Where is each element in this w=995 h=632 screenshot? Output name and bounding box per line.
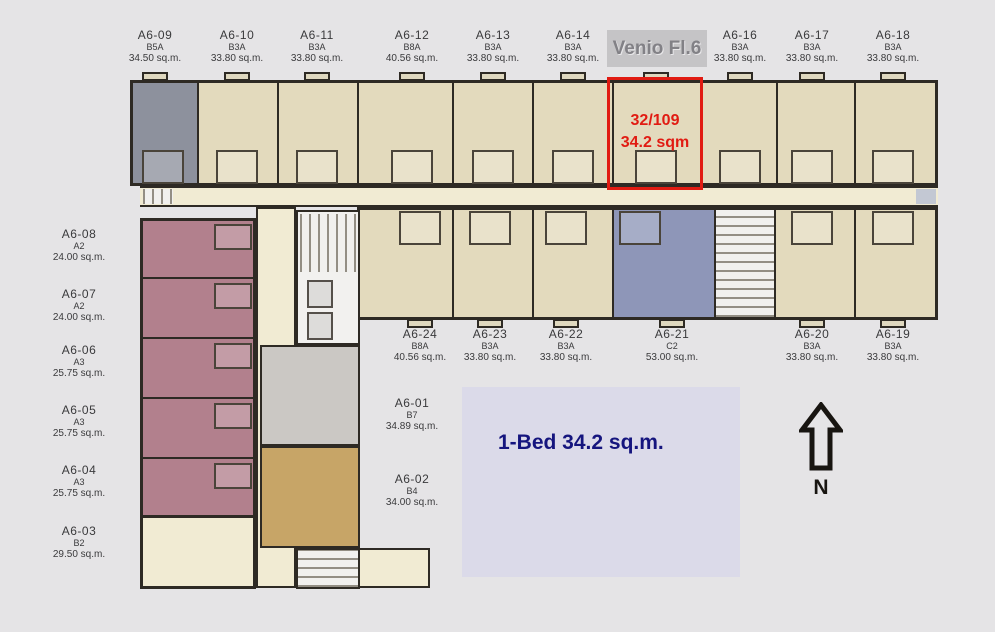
bathroom-area: [872, 211, 914, 245]
unit-id: A6-08: [34, 227, 124, 241]
unit-area: 33.80 sq.m.: [851, 352, 935, 364]
unit-type: A2: [34, 301, 124, 312]
unit-id: A6-03: [34, 524, 124, 538]
bathroom-area: [216, 150, 258, 184]
unit-type: C2: [630, 341, 714, 352]
selected-unit-highlight[interactable]: 32/109 34.2 sqm: [607, 77, 703, 190]
wall: [357, 80, 359, 186]
bathroom-area: [214, 224, 252, 250]
unit-type: A3: [34, 477, 124, 488]
unit-id: A6-11: [275, 28, 359, 42]
wall: [774, 207, 776, 320]
wall: [854, 80, 856, 186]
corridor-east-end: [916, 189, 936, 204]
unit-label-a6-12: A6-12 B8A 40.56 sq.m.: [370, 28, 454, 65]
unit-label-a6-07: A6-07 A2 24.00 sq.m.: [34, 287, 124, 324]
unit-id: A6-14: [531, 28, 615, 42]
balcony-tab: [224, 72, 250, 81]
bathroom-area: [142, 150, 184, 184]
unit-id: A6-21: [630, 327, 714, 341]
unit-id: A6-06: [34, 343, 124, 357]
wall: [776, 80, 778, 186]
bathroom-area: [619, 211, 661, 245]
corridor-south-stub: [358, 548, 430, 588]
unit-label-a6-05: A6-05 A3 25.75 sq.m.: [34, 403, 124, 440]
elevator-shaft: [307, 280, 333, 308]
unit-area: 33.80 sq.m.: [770, 352, 854, 364]
unit-label-a6-23: A6-23 B3A 33.80 sq.m.: [448, 327, 532, 364]
unit-type: B5A: [113, 42, 197, 53]
bathroom-area: [872, 150, 914, 184]
unit-type: B8A: [370, 42, 454, 53]
unit-id: A6-02: [367, 472, 457, 486]
unit-area: 25.75 sq.m.: [34, 428, 124, 440]
bathroom-area: [791, 211, 833, 245]
unit-type: B4: [367, 486, 457, 497]
unit-area: 25.75 sq.m.: [34, 488, 124, 500]
unit-area: 34.00 sq.m.: [367, 497, 457, 509]
balcony-tab: [727, 72, 753, 81]
unit-id: A6-12: [370, 28, 454, 42]
floorplan-image: Venio Fl.6 32/109 34.2 sqm 1-Bed 34.2 sq…: [0, 0, 995, 632]
unit-type: B2: [34, 538, 124, 549]
unit-type: B7: [367, 410, 457, 421]
unit-type: B3A: [195, 42, 279, 53]
corridor-west-stairs: [143, 189, 173, 204]
unit-id: A6-09: [113, 28, 197, 42]
bathroom-area: [469, 211, 511, 245]
bathroom-area: [214, 343, 252, 369]
unit-id: A6-10: [195, 28, 279, 42]
balcony-tab: [480, 72, 506, 81]
unit-a6-02-shape: [260, 446, 360, 548]
unit-label-a6-10: A6-10 B3A 33.80 sq.m.: [195, 28, 279, 65]
unit-area: 33.80 sq.m.: [770, 53, 854, 65]
unit-id: A6-23: [448, 327, 532, 341]
unit-area: 40.56 sq.m.: [370, 53, 454, 65]
elevator-shaft: [307, 312, 333, 340]
unit-type: A3: [34, 357, 124, 368]
unit-label-a6-13: A6-13 B3A 33.80 sq.m.: [451, 28, 535, 65]
unit-label-a6-21: A6-21 C2 53.00 sq.m.: [630, 327, 714, 364]
balcony-tab: [399, 72, 425, 81]
bathroom-area: [545, 211, 587, 245]
unit-id: A6-17: [770, 28, 854, 42]
unit-label-a6-22: A6-22 B3A 33.80 sq.m.: [524, 327, 608, 364]
unit-id: A6-18: [851, 28, 935, 42]
bathroom-area: [791, 150, 833, 184]
bathroom-area: [399, 211, 441, 245]
unit-id: A6-22: [524, 327, 608, 341]
unit-area: 29.50 sq.m.: [34, 549, 124, 561]
unit-type: B3A: [851, 42, 935, 53]
selected-unit-number: 32/109: [610, 110, 700, 132]
wall: [532, 207, 534, 320]
balcony-tab: [560, 72, 586, 81]
unit-label-a6-17: A6-17 B3A 33.80 sq.m.: [770, 28, 854, 65]
unit-label-a6-20: A6-20 B3A 33.80 sq.m.: [770, 327, 854, 364]
unit-area: 33.80 sq.m.: [451, 53, 535, 65]
unit-type: B3A: [770, 42, 854, 53]
caption-panel: 1-Bed 34.2 sq.m.: [462, 387, 740, 577]
selected-unit-area: 34.2 sqm: [610, 132, 700, 154]
bathroom-area: [719, 150, 761, 184]
unit-type: A2: [34, 241, 124, 252]
unit-label-a6-18: A6-18 B3A 33.80 sq.m.: [851, 28, 935, 65]
unit-area: 24.00 sq.m.: [34, 312, 124, 324]
balcony-tab: [304, 72, 330, 81]
core-stairs: [300, 214, 356, 272]
bathroom-area: [296, 150, 338, 184]
stairwell-south: [296, 548, 360, 589]
caption-text: 1-Bed 34.2 sq.m.: [498, 431, 664, 455]
unit-type: B3A: [451, 42, 535, 53]
unit-label-a6-14: A6-14 B3A 33.80 sq.m.: [531, 28, 615, 65]
stairwell-east: [716, 210, 774, 317]
unit-area: 53.00 sq.m.: [630, 352, 714, 364]
unit-type: B3A: [770, 341, 854, 352]
unit-id: A6-04: [34, 463, 124, 477]
bathroom-area: [214, 283, 252, 309]
unit-label-a6-08: A6-08 A2 24.00 sq.m.: [34, 227, 124, 264]
unit-area: 33.80 sq.m.: [524, 352, 608, 364]
unit-area: 33.80 sq.m.: [275, 53, 359, 65]
unit-label-a6-19: A6-19 B3A 33.80 sq.m.: [851, 327, 935, 364]
wall: [452, 80, 454, 186]
bathroom-area: [214, 463, 252, 489]
wall: [854, 207, 856, 320]
wall: [532, 80, 534, 186]
unit-label-a6-03: A6-03 B2 29.50 sq.m.: [34, 524, 124, 561]
wall: [140, 277, 256, 279]
wall: [140, 457, 256, 459]
unit-id: A6-01: [367, 396, 457, 410]
wall: [197, 80, 199, 186]
unit-area: 33.80 sq.m.: [448, 352, 532, 364]
unit-label-a6-06: A6-06 A3 25.75 sq.m.: [34, 343, 124, 380]
unit-type: A3: [34, 417, 124, 428]
unit-area: 33.80 sq.m.: [531, 53, 615, 65]
unit-id: A6-13: [451, 28, 535, 42]
unit-type: B3A: [448, 341, 532, 352]
wall: [452, 207, 454, 320]
bathroom-area: [214, 403, 252, 429]
unit-id: A6-07: [34, 287, 124, 301]
north-arrow-icon: [799, 402, 843, 474]
unit-type: B3A: [275, 42, 359, 53]
bathroom-area: [552, 150, 594, 184]
unit-label-a6-11: A6-11 B3A 33.80 sq.m.: [275, 28, 359, 65]
unit-area: 25.75 sq.m.: [34, 368, 124, 380]
wall: [612, 207, 614, 320]
unit-a6-03-shape: [140, 515, 256, 589]
balcony-tab: [880, 72, 906, 81]
unit-area: 34.89 sq.m.: [367, 421, 457, 433]
main-corridor: [140, 186, 938, 207]
bathroom-area: [391, 150, 433, 184]
unit-type: B3A: [524, 341, 608, 352]
unit-label-a6-01: A6-01 B7 34.89 sq.m.: [367, 396, 457, 433]
wall: [277, 80, 279, 186]
unit-a6-01-shape: [260, 345, 360, 446]
unit-label-a6-09: A6-09 B5A 34.50 sq.m.: [113, 28, 197, 65]
balcony-tab: [142, 72, 168, 81]
unit-area: 24.00 sq.m.: [34, 252, 124, 264]
unit-type: B3A: [851, 341, 935, 352]
north-label: N: [799, 476, 843, 500]
unit-id: A6-20: [770, 327, 854, 341]
unit-area: 34.50 sq.m.: [113, 53, 197, 65]
unit-id: A6-19: [851, 327, 935, 341]
wall: [140, 397, 256, 399]
wall: [714, 207, 716, 320]
unit-label-a6-04: A6-04 A3 25.75 sq.m.: [34, 463, 124, 500]
wall: [140, 337, 256, 339]
bathroom-area: [472, 150, 514, 184]
floor-title: Venio Fl.6: [607, 30, 707, 67]
unit-area: 33.80 sq.m.: [851, 53, 935, 65]
unit-label-a6-02: A6-02 B4 34.00 sq.m.: [367, 472, 457, 509]
balcony-tab: [799, 72, 825, 81]
unit-area: 33.80 sq.m.: [195, 53, 279, 65]
unit-id: A6-05: [34, 403, 124, 417]
unit-type: B3A: [531, 42, 615, 53]
